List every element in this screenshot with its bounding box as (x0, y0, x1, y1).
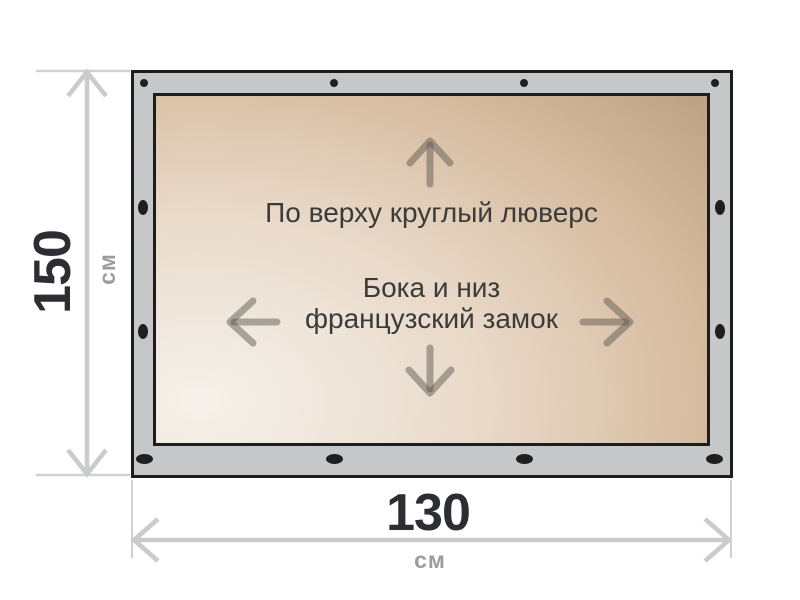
sides-bottom-label-line1: Бока и низ (153, 272, 710, 303)
french-lock-icon (715, 200, 725, 215)
french-lock-icon (138, 324, 148, 339)
french-lock-icon (715, 324, 725, 339)
sides-bottom-label: Бока и низ французский замок (153, 272, 710, 334)
french-lock-icon (706, 454, 723, 464)
width-value: 130 (328, 487, 528, 539)
round-grommet-icon (140, 79, 148, 87)
round-grommet-icon (330, 79, 338, 87)
height-value: 150 (23, 212, 83, 332)
round-grommet-icon (711, 79, 719, 87)
sides-bottom-label-line2: французский замок (153, 303, 710, 334)
diagram-canvas: По верху круглый люверс Бока и низ франц… (0, 0, 800, 600)
height-unit: см (82, 219, 132, 319)
french-lock-icon (136, 454, 153, 464)
french-lock-icon (326, 454, 343, 464)
french-lock-icon (138, 200, 148, 215)
tarp-surface (153, 93, 710, 446)
width-unit: см (330, 549, 530, 572)
top-edge-label: По верху круглый люверс (153, 197, 710, 228)
round-grommet-icon (520, 79, 528, 87)
french-lock-icon (516, 454, 533, 464)
